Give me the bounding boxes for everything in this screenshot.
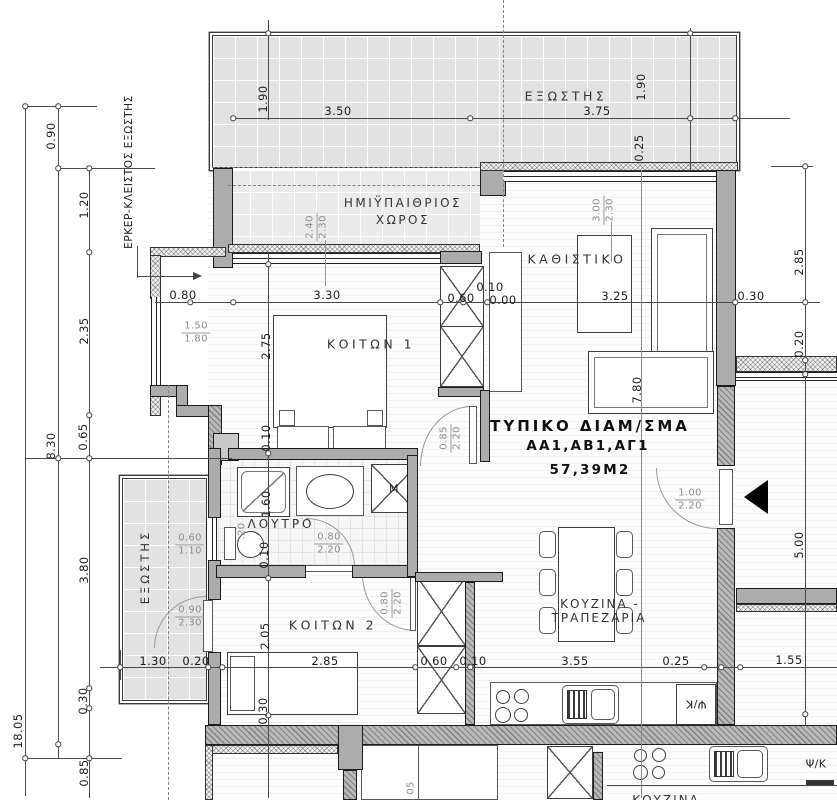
dim-tick (265, 261, 271, 267)
dim-fraction: 1.501.80 (181, 321, 210, 346)
dim-label: 0.10 (459, 654, 486, 668)
erker-label: ΕΡΚΕΡ-ΚΛΕΙΣΤΟΣ ΕΞΩΣΤΗΣ (123, 95, 135, 249)
dim-label: 0.10 (257, 541, 271, 568)
fridge-label-below: Ψ/Κ (806, 758, 827, 771)
wall (438, 387, 484, 397)
dim-label: 2.05 (258, 622, 272, 649)
stove-burner (514, 708, 528, 722)
wall (717, 528, 735, 725)
stove-burner (514, 689, 529, 704)
wall (480, 390, 490, 462)
dim-tick (467, 115, 473, 121)
dim-line (233, 118, 790, 119)
dim-label: 0.30 (256, 697, 270, 724)
dim-line (58, 168, 155, 169)
wall (593, 752, 603, 800)
dim-tick (22, 755, 28, 761)
dim-label: 0.60 (447, 291, 474, 305)
room-label-bedroom1: ΚΟΙΤΩΝ 1 (327, 337, 415, 352)
balcony-top (212, 35, 737, 168)
wall (228, 448, 418, 460)
fridge-label: Ψ/Κ (686, 698, 707, 711)
chair (539, 531, 556, 558)
nightstand (333, 426, 386, 450)
wardrobe (417, 577, 466, 646)
room-label-semi-open: ΧΩΡΟΣ (376, 213, 430, 227)
dim-label: 7.80 (630, 376, 644, 403)
dim-tick (732, 115, 738, 121)
dim-tick (86, 165, 92, 171)
room-label-living: ΚΑΘΙΣΤΙΚΟ (527, 252, 626, 267)
window-leader (325, 240, 326, 286)
dim-tick (55, 741, 61, 747)
balcony-boundary (212, 167, 480, 168)
dim-tick (86, 455, 92, 461)
dim-tick (718, 664, 724, 670)
wall (338, 725, 363, 770)
wardrobe (440, 326, 484, 387)
bed-pillow (367, 410, 383, 426)
dim-tick (802, 299, 808, 305)
wall (716, 170, 736, 386)
room-label-bathroom: ΛΟΥΤΡΟ (248, 517, 315, 531)
dim-label: 0.80 (169, 288, 196, 302)
tv-cabinet (489, 252, 522, 392)
wall-insulated (150, 247, 226, 257)
dim-label: 1.30 (139, 654, 166, 668)
dim-tick (802, 357, 808, 363)
dim-tick (230, 299, 236, 305)
dim-tick (412, 664, 418, 670)
bedroom2-door-leaf (410, 574, 416, 631)
dim-label: 2.85 (311, 654, 338, 668)
dim-tick (265, 575, 271, 581)
sofa (588, 351, 714, 414)
dim-tick (230, 115, 236, 121)
dim-label: 0.10 (259, 424, 273, 451)
dim-tick (117, 664, 123, 670)
dim-line (690, 28, 691, 170)
leader-line (137, 276, 195, 277)
dim-label: 1.90 (256, 85, 270, 112)
dim-label: 3.75 (583, 104, 610, 118)
wall (415, 572, 503, 582)
bed-line (418, 746, 419, 799)
sink-drainboard (567, 690, 587, 719)
dim-tick (265, 30, 271, 36)
dim-label: 3.80 (77, 556, 91, 583)
dim-label: 2.35 (77, 317, 91, 344)
bed-below (361, 745, 498, 800)
dim-label: .20 (237, 523, 248, 540)
bathroom-window (206, 518, 217, 560)
dim-label: 1.60 (259, 490, 273, 517)
room-label-kitchen: ΤΡΑΠΕΖΑΡΙΑ (552, 611, 647, 625)
toilet-tank (224, 527, 236, 560)
wall-insulated (736, 356, 837, 372)
dim-label: 2.85 (792, 248, 806, 275)
wall (205, 725, 837, 745)
dim-tick (701, 664, 707, 670)
semi-open-line (228, 185, 480, 186)
bathroom-door-leaf (305, 565, 353, 572)
entry-arrow (744, 480, 768, 514)
dim-label: 2.75 (259, 332, 273, 359)
entry-door-leaf (719, 469, 733, 525)
property-line (503, 0, 504, 247)
dim-tick (687, 30, 693, 36)
dim-label: 3.30 (313, 288, 340, 302)
room-label-balcony-left: ΕΞΩΣΤΗΣ (138, 530, 152, 605)
bay-window (151, 297, 161, 388)
dim-label: 0.90 (44, 122, 58, 149)
bedroom1-window (233, 253, 440, 264)
dim-fraction: 2.402.30 (305, 212, 330, 241)
dim-label: 1.55 (775, 653, 802, 667)
dim-label: 1.90 (634, 73, 648, 100)
coffee-table (577, 235, 632, 333)
stove-burner (496, 690, 510, 704)
dim-tick (802, 711, 808, 717)
room-label-semi-open: ΗΜΙΫΠΑΙΘΡΙΟΣ (344, 196, 462, 210)
bed-pillow (230, 656, 255, 711)
dim-label: 05 (406, 781, 417, 794)
dim-label: 0.30 (737, 289, 764, 303)
dim-label: 0.00 (489, 293, 516, 307)
dim-label: 0.60 (420, 654, 447, 668)
washbasin (306, 474, 354, 509)
dim-line (25, 758, 122, 759)
dim-label: 3.25 (601, 289, 628, 303)
property-line (168, 385, 169, 800)
wall (717, 386, 735, 466)
room-label-kitchen: ΚΟΥΖΙΝΑ - (560, 597, 640, 611)
dim-tick (802, 371, 808, 377)
dim-fraction: 1.002.20 (675, 488, 704, 513)
dim-label: 5.00 (792, 531, 806, 558)
dim-label: 8.30 (44, 432, 58, 459)
dim-label: 0.85 (77, 759, 91, 786)
room-label-kitchen-below: ΚΟΥΖΙΝΑ (632, 793, 700, 800)
wall (736, 588, 837, 604)
stove-burner (652, 748, 666, 762)
dim-line (25, 106, 26, 796)
leader-arrow (193, 272, 202, 280)
dim-tick (86, 412, 92, 418)
dim-fraction: 0.802.20 (314, 532, 343, 557)
washer-label: Μ (389, 483, 399, 496)
dim-label: 3.55 (561, 654, 588, 668)
dim-label: 0.10 (476, 280, 503, 294)
wall (407, 455, 418, 577)
dim-tick (737, 664, 743, 670)
wall-insulated (150, 255, 161, 299)
wall-insulated (736, 604, 837, 612)
dim-label: 0.20 (182, 654, 209, 668)
dim-tick (437, 299, 443, 305)
dim-fraction: 0.802.20 (380, 588, 405, 617)
dim-tick (687, 115, 693, 121)
dim-label: 0.30 (76, 687, 90, 714)
dim-tick (802, 163, 808, 169)
nightstand (277, 426, 329, 450)
room-label-bedroom2: ΚΟΙΤΩΝ 2 (289, 618, 377, 633)
wall-insulated (205, 745, 213, 800)
sink-drainboard (714, 751, 734, 777)
dim-label: 18.05 (11, 714, 25, 749)
chair (616, 531, 633, 558)
dim-fraction: 0.601.10 (175, 533, 204, 558)
apartment-title: ΤΥΠΙΚΟ ΔΙΑΜ/ΣΜΑ (490, 417, 690, 435)
hall-door-leaf (469, 406, 477, 464)
sink-basin (737, 750, 763, 778)
stove-burner (495, 707, 511, 723)
wall (440, 251, 482, 264)
floor (736, 612, 837, 725)
dim-line (25, 106, 97, 107)
dim-label: 0.65 (76, 423, 90, 450)
wall (208, 652, 221, 725)
dim-tick (86, 249, 92, 255)
dim-fraction: 3.002.30 (592, 195, 617, 224)
dim-fraction: 0.852.20 (439, 423, 464, 452)
apartment-area: 57,39Μ2 (550, 462, 631, 478)
chair (616, 569, 633, 596)
dim-tick (453, 664, 459, 670)
apartment-units: ΑΑ1,ΑΒ1,ΑΓ1 (526, 438, 649, 454)
wall-insulated (480, 162, 738, 171)
living-window (503, 171, 720, 182)
dim-label: 0.20 (792, 330, 806, 357)
dim-tick (55, 165, 61, 171)
neighbor-window (736, 372, 837, 381)
dim-label: 3.50 (324, 104, 351, 118)
dim-tick (55, 103, 61, 109)
wardrobe-below (547, 746, 593, 799)
dim-line (58, 106, 59, 758)
dim-label: 1.20 (77, 191, 91, 218)
chair (539, 569, 556, 596)
room-label-balcony-top: ΕΞΩΣΤΗΣ (525, 89, 608, 104)
dim-tick (22, 103, 28, 109)
dim-fraction: 0.902.30 (175, 605, 204, 630)
dim-label: 0.25 (632, 134, 646, 161)
sink-basin (591, 689, 615, 720)
wall (343, 770, 357, 800)
dim-label: 0.25 (662, 654, 689, 668)
dim-tick (219, 664, 225, 670)
leader-line (137, 246, 138, 278)
axis-line (641, 170, 642, 798)
wall-insulated (205, 745, 338, 754)
stove-burner (652, 766, 665, 779)
bed-pillow (279, 410, 295, 426)
floor-plan: 1.90 3.50 3.75 1.90 0.25 0.90 1.20 2.35 … (0, 0, 837, 800)
